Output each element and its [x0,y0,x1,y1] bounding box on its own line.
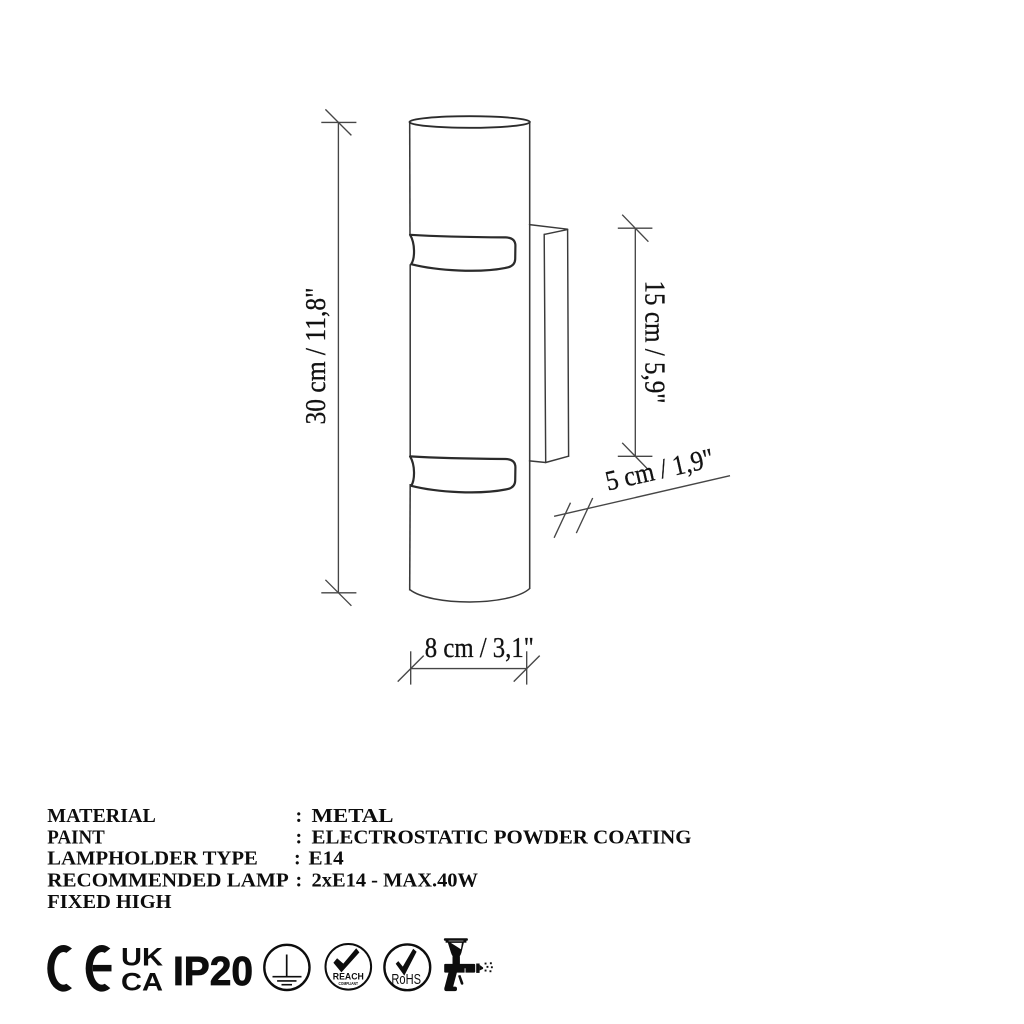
svg-text:RECOMMENDED LAMP: RECOMMENDED LAMP [47,869,288,891]
svg-text::: : [296,805,303,827]
svg-text:PAINT: PAINT [47,826,105,848]
svg-text:COMPLIANT: COMPLIANT [339,981,359,986]
svg-text:RoHS: RoHS [391,972,421,988]
svg-text:8 cm / 3,1": 8 cm / 3,1" [425,633,534,664]
svg-text:30 cm / 11,8": 30 cm / 11,8" [301,288,332,425]
svg-text::: : [294,848,301,870]
svg-text:15 cm / 5,9": 15 cm / 5,9" [639,281,670,404]
svg-text:REACH: REACH [333,971,364,981]
svg-text:METAL: METAL [312,805,394,827]
svg-text:MATERIAL: MATERIAL [47,805,156,827]
svg-text:2xE14 - MAX.40W: 2xE14 - MAX.40W [312,869,479,891]
svg-text:UK: UK [121,944,163,972]
svg-text:E14: E14 [309,848,344,870]
svg-text:FIXED HIGH: FIXED HIGH [47,891,172,913]
svg-text:IP20: IP20 [173,948,253,994]
svg-text:CA: CA [121,969,163,997]
svg-text:LAMPHOLDER TYPE: LAMPHOLDER TYPE [47,848,257,870]
svg-text::: : [296,869,303,891]
svg-text::: : [296,826,303,848]
svg-text:ELECTROSTATIC POWDER COATING: ELECTROSTATIC POWDER COATING [312,826,692,848]
